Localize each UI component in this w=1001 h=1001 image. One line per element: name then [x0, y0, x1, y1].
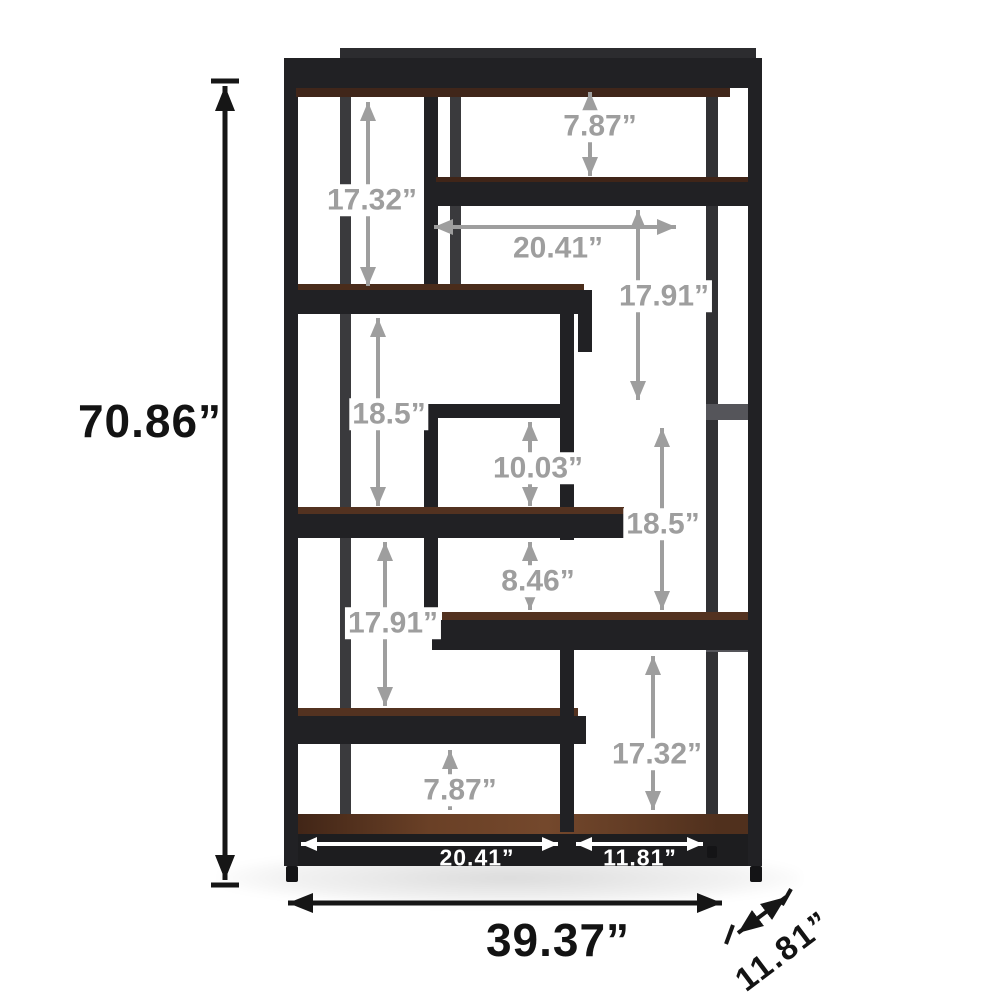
rear-right-post	[706, 52, 718, 846]
dim-label-gap-small: 8.46”	[498, 565, 577, 597]
shelf-3-end-post	[578, 290, 592, 352]
shelf-6	[284, 716, 586, 744]
bottom-shelf-wood-top	[290, 814, 756, 834]
vertical-divider-hook	[560, 290, 574, 540]
dim-label-width-upper-shelf: 20.41”	[510, 232, 606, 264]
product-dimension-diagram: 70.86” 39.37” 11.81” 7.87” 17.32” 20.41”…	[0, 0, 1001, 1001]
dim-label-gap-inner: 10.03”	[490, 452, 586, 484]
bottom-shelf-face	[284, 834, 762, 866]
dim-label-gap-upper-left: 17.32”	[324, 184, 420, 216]
dim-label-gap-lower-right: 17.32”	[609, 738, 705, 770]
shelf-2	[424, 182, 762, 206]
dim-label-total-width: 39.37”	[486, 913, 630, 967]
dim-label-bottom-left-shelf: 20.41”	[439, 845, 514, 872]
right-foot	[750, 866, 762, 882]
shelf-3	[284, 290, 592, 314]
middle-beam	[424, 404, 574, 418]
top-shelf-wood-edge	[296, 88, 730, 97]
right-post	[748, 60, 762, 866]
top-shelf	[284, 58, 762, 88]
dim-label-gap-upper-right: 17.91”	[616, 280, 712, 312]
dim-label-gap-mid-right: 18.5”	[623, 508, 702, 540]
dim-label-total-height: 70.86”	[78, 394, 222, 448]
dim-label-gap-mid-left: 18.5”	[349, 398, 428, 430]
left-post	[284, 68, 298, 866]
dim-label-depth: 11.81”	[728, 903, 838, 999]
dim-label-gap-top: 7.87”	[560, 110, 639, 142]
dim-label-bottom-right-shelf: 11.81”	[603, 845, 677, 872]
shelf-4	[284, 514, 632, 538]
left-foot	[286, 866, 298, 882]
vertical-divider-bottom	[560, 648, 574, 832]
dimension-tick-total-width	[726, 925, 733, 944]
rear-right-foot	[707, 846, 717, 858]
dim-label-gap-lower-left: 17.91”	[345, 607, 441, 639]
shelf-5	[432, 620, 762, 650]
dim-label-gap-bottom: 7.87”	[420, 774, 499, 806]
